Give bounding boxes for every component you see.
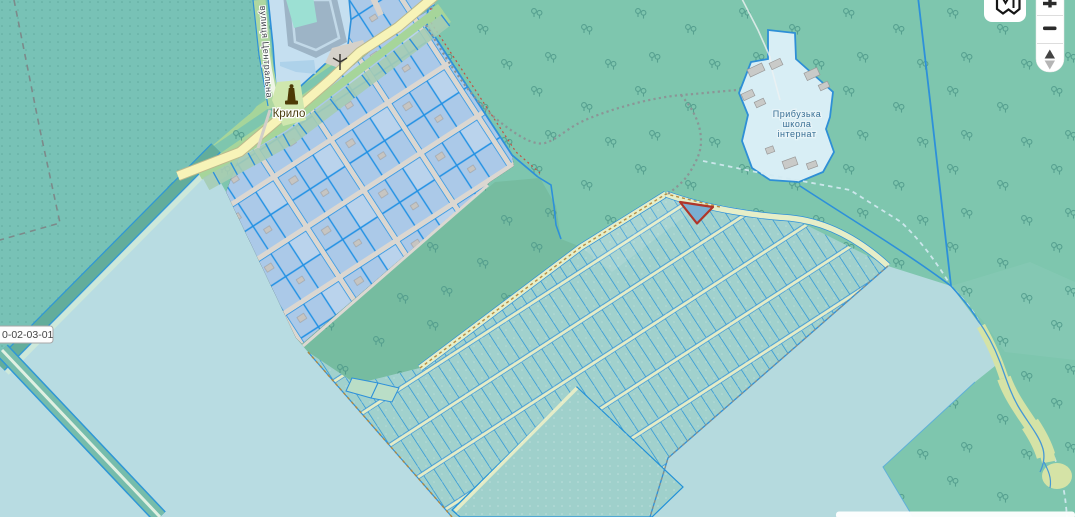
svg-text:Крило: Крило [273,108,306,120]
svg-text:Прибузька: Прибузька [773,109,821,119]
svg-text:школа: школа [783,119,812,129]
svg-text:0-02-03-01: 0-02-03-01 [2,329,54,341]
svg-text:інтернат: інтернат [778,129,817,139]
